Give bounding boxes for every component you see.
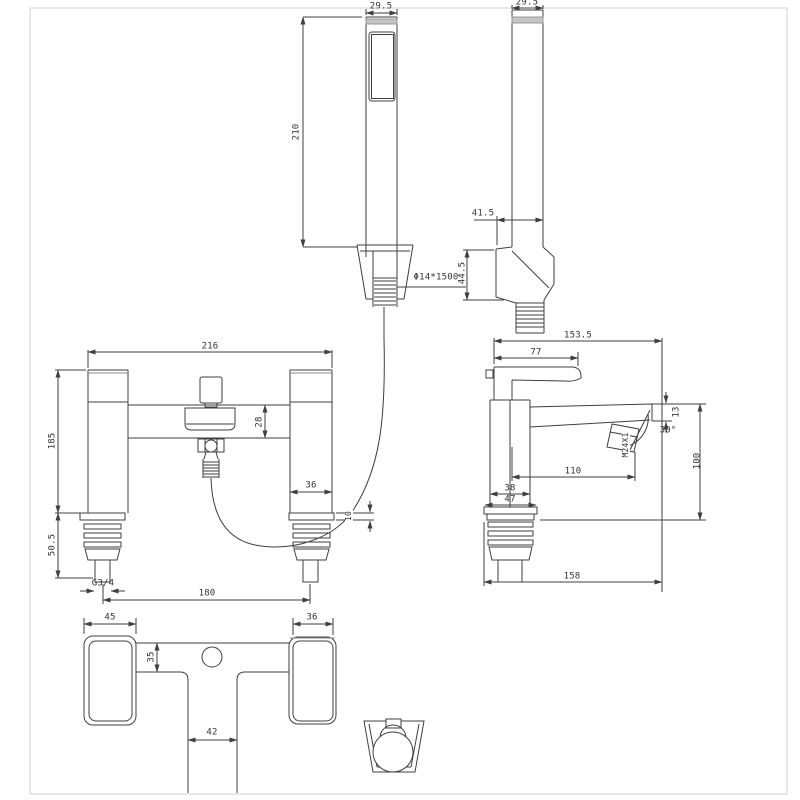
mixer-plan-view	[84, 618, 424, 793]
dim-mixer-inlet-centres: 180	[199, 590, 216, 599]
dim-plan-handle-depth: 36	[306, 614, 317, 623]
dim-side-handle-length: 77	[530, 349, 541, 358]
handset-side-view	[463, 5, 554, 333]
dim-mixer-deck-plate: 10	[345, 510, 353, 522]
dim-mixer-body-height: 185	[49, 433, 58, 450]
technical-drawing-page: 29.5 210 Φ14*1500 29.5 41.5 44.5 216 185…	[0, 0, 800, 800]
dim-handset-head-depth: 41.5	[472, 210, 494, 219]
dim-side-body-depth: 38	[504, 485, 515, 494]
dim-handset-head-height: 44.5	[459, 262, 468, 284]
mixer-side-view	[484, 338, 706, 592]
dim-handset-side-width: 29.5	[516, 0, 538, 8]
drawing-canvas	[0, 0, 800, 800]
dim-mixer-pillar-width: 36	[305, 482, 316, 491]
dim-handset-front-width: 29.5	[370, 3, 392, 12]
dim-side-spout-tip: 13	[673, 406, 682, 417]
dim-plan-handle-width: 45	[104, 614, 115, 623]
dim-side-base-depth: 158	[564, 573, 581, 582]
page-border	[30, 8, 787, 794]
dim-mixer-spout-height: 28	[256, 416, 265, 427]
dim-plan-bar-depth: 35	[148, 651, 157, 662]
label-inlet-thread: G3/4	[92, 580, 114, 589]
dim-side-spout-reach: 110	[565, 468, 582, 477]
dim-plan-spout-width: 42	[206, 729, 217, 738]
label-aerator-thread: M24X1	[622, 431, 630, 458]
label-hose-spec: Φ14*1500	[414, 274, 459, 283]
dim-side-flange-depth: 47	[504, 496, 515, 505]
dim-mixer-shank-height: 50.5	[49, 534, 58, 556]
dim-side-overall-depth: 153.5	[564, 332, 592, 341]
mixer-front-view	[55, 350, 374, 604]
dim-handset-height: 210	[293, 124, 302, 141]
dim-mixer-overall-width: 216	[202, 343, 219, 352]
dim-side-spout-clearance: 100	[694, 453, 703, 470]
label-spout-angle: 30°	[660, 427, 677, 436]
